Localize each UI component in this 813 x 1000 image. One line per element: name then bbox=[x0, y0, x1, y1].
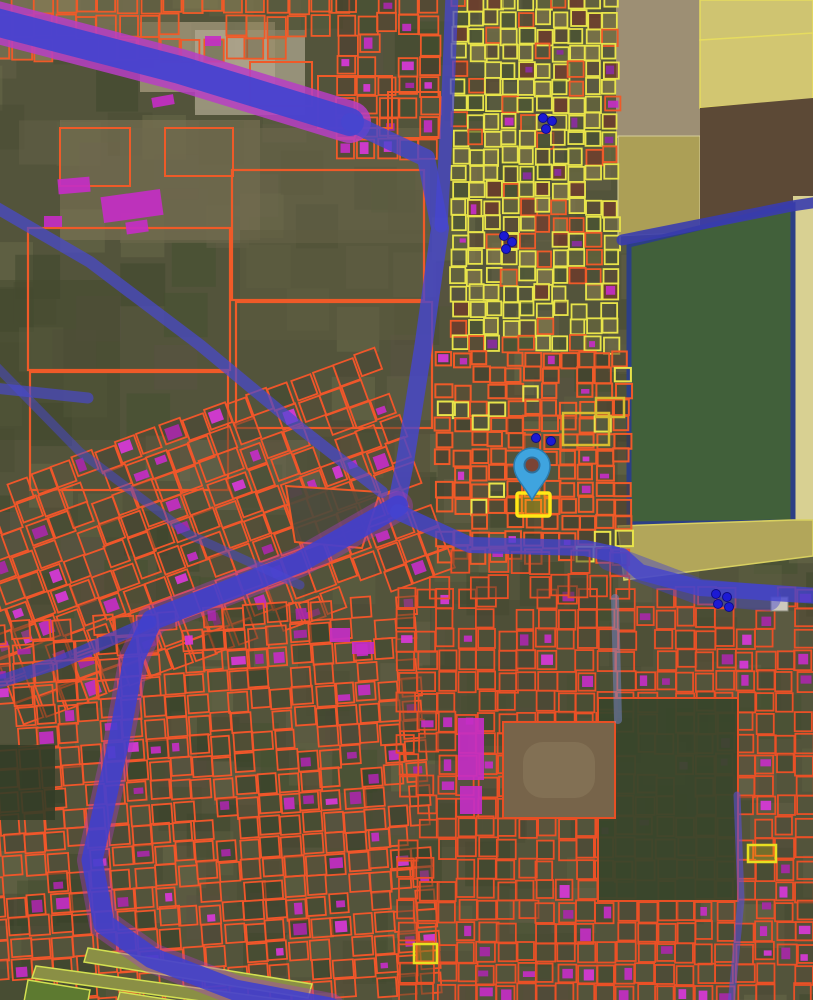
pin-hole-icon bbox=[525, 458, 540, 473]
highlighted-parcel[interactable] bbox=[748, 845, 776, 862]
road-segment bbox=[615, 598, 618, 720]
field-patches bbox=[616, 0, 813, 580]
building-footprint bbox=[44, 216, 62, 227]
map-canvas[interactable] bbox=[0, 0, 813, 1000]
highlighted-parcel[interactable] bbox=[414, 944, 437, 963]
map-view bbox=[0, 0, 813, 1000]
building-footprint bbox=[352, 642, 374, 654]
building-footprint bbox=[460, 786, 482, 814]
building-footprint bbox=[458, 718, 484, 780]
building-footprint bbox=[57, 177, 90, 195]
building-footprint bbox=[330, 628, 350, 642]
building-footprint bbox=[205, 36, 221, 46]
